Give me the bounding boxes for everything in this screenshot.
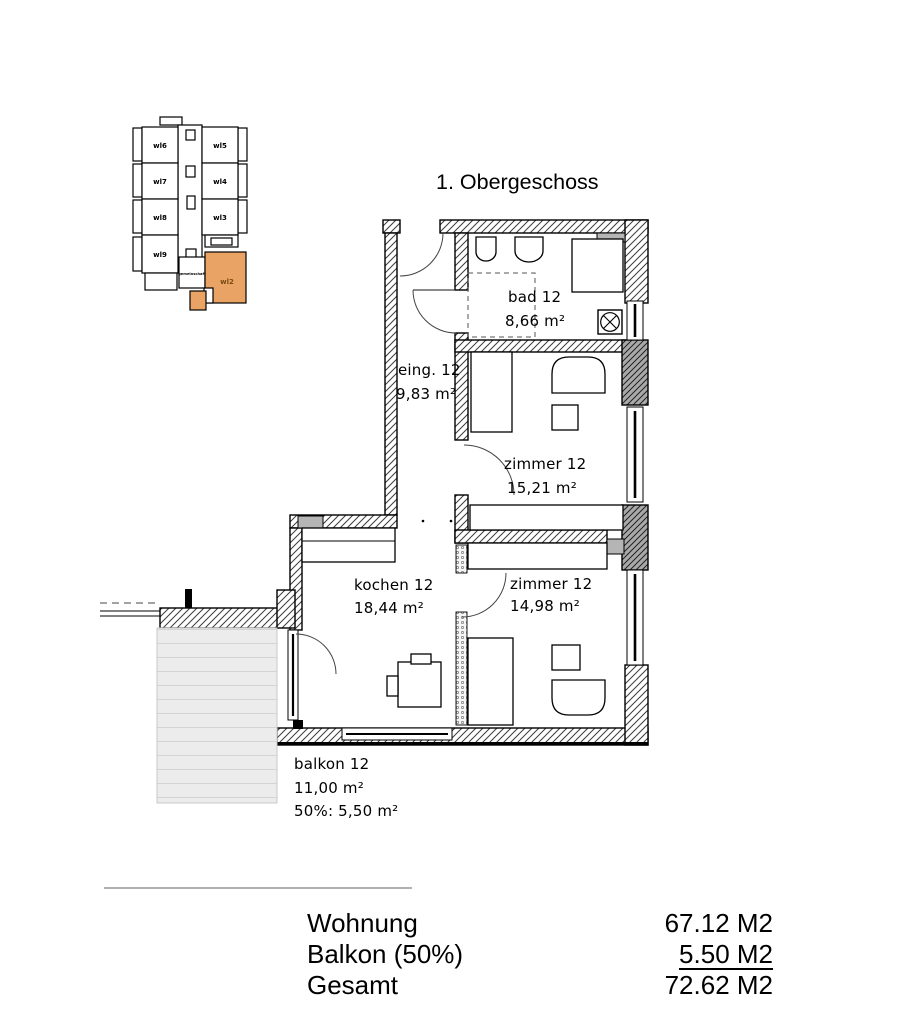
neighbor-window-line bbox=[100, 611, 160, 616]
wall-segment-dark bbox=[622, 505, 648, 570]
key-label-wl6: wl6 bbox=[153, 142, 167, 150]
wall-segment-right bbox=[625, 220, 648, 303]
wall-segment bbox=[440, 220, 648, 233]
kitchen-chair bbox=[411, 654, 431, 664]
wall-segment bbox=[455, 233, 468, 290]
key-balcony-strip bbox=[133, 237, 142, 271]
armchair-zimmer-2 bbox=[552, 680, 605, 715]
key-label-wl8: wl8 bbox=[153, 214, 167, 222]
key-label-wl2: wl2 bbox=[220, 278, 234, 286]
summary-label: Wohnung bbox=[307, 908, 418, 939]
closet-zimmer-1 bbox=[470, 505, 623, 530]
key-label-wl7: wl7 bbox=[153, 178, 167, 186]
key-balcony-strip bbox=[238, 128, 247, 161]
key-plan: wl6 wl7 wl8 wl9 wl5 wl4 wl3 gemeinschaft… bbox=[133, 117, 247, 310]
wall-segment bbox=[455, 530, 607, 543]
bathtub bbox=[572, 239, 623, 292]
marker-dot bbox=[450, 520, 453, 523]
summary-table: Wohnung 67.12 M2 Balkon (50%) 5.50 M2 Ge… bbox=[307, 908, 773, 1001]
summary-row-balkon: Balkon (50%) 5.50 M2 bbox=[307, 939, 773, 970]
room-area-balkon: 11,00 m² bbox=[294, 779, 364, 797]
room-area-zimmer-1: 15,21 m² bbox=[507, 479, 577, 497]
room-name-zimmer-1: zimmer 12 bbox=[504, 455, 586, 473]
room-name-kochen: kochen 12 bbox=[354, 576, 433, 594]
bed-zimmer-2 bbox=[468, 638, 513, 725]
summary-row-wohnung: Wohnung 67.12 M2 bbox=[307, 908, 773, 939]
kitchen-table bbox=[398, 662, 441, 707]
key-label-wl9: wl9 bbox=[153, 251, 167, 259]
balcony bbox=[100, 603, 277, 803]
armchair-zimmer-1 bbox=[552, 357, 605, 393]
door-arc-balcony bbox=[296, 634, 336, 674]
key-stair-window bbox=[187, 196, 195, 209]
summary-value: 5.50 M2 bbox=[679, 939, 773, 970]
door-arc-zimmer-2 bbox=[462, 573, 506, 617]
room-name-eing: eing. 12 bbox=[398, 361, 461, 379]
table-zimmer-2 bbox=[552, 645, 580, 670]
closet-zimmer-2 bbox=[468, 543, 607, 569]
summary-value: 72.62 M2 bbox=[665, 970, 773, 1001]
vent-symbol bbox=[598, 310, 622, 334]
toilet bbox=[476, 237, 496, 261]
key-terrace-inner bbox=[211, 238, 232, 245]
room-name-zimmer-2: zimmer 12 bbox=[510, 575, 592, 593]
key-label-wl5: wl5 bbox=[213, 142, 227, 150]
marker-dot bbox=[422, 520, 425, 523]
summary-row-gesamt: Gesamt 72.62 M2 bbox=[307, 970, 773, 1001]
key-balcony-strip bbox=[238, 200, 247, 233]
wall-stub bbox=[293, 720, 303, 729]
sink bbox=[515, 237, 543, 262]
wall-segment-balcony bbox=[160, 608, 278, 628]
room-name-balkon: balkon 12 bbox=[294, 755, 369, 773]
summary-divider bbox=[104, 887, 412, 889]
room-area-bad: 8,66 m² bbox=[505, 312, 565, 330]
bed-zimmer-1 bbox=[471, 352, 512, 432]
partition-light bbox=[456, 612, 467, 725]
door-arc-bad bbox=[413, 290, 456, 333]
wall-segment bbox=[455, 340, 625, 352]
key-stair-window bbox=[186, 166, 195, 177]
summary-label: Balkon (50%) bbox=[307, 939, 463, 970]
wall-stub bbox=[185, 589, 192, 608]
summary-value: 67.12 M2 bbox=[665, 908, 773, 939]
key-label-wl4: wl4 bbox=[213, 178, 227, 186]
key-label-wl3: wl3 bbox=[213, 214, 227, 222]
plan-title: 1. Obergeschoss bbox=[436, 170, 599, 195]
radiator bbox=[456, 545, 467, 573]
balcony-deck bbox=[157, 628, 277, 803]
key-balcony-strip bbox=[133, 200, 142, 233]
key-chimney bbox=[160, 117, 182, 125]
door-arc-entrance bbox=[400, 233, 443, 276]
summary-label: Gesamt bbox=[307, 970, 398, 1001]
key-balcony-strip bbox=[133, 128, 142, 161]
wall-segment bbox=[385, 233, 397, 515]
kitchen-counter bbox=[302, 528, 395, 562]
room-area-zimmer-2: 14,98 m² bbox=[510, 597, 580, 615]
wall-segment-right bbox=[625, 665, 648, 745]
wall-segment-dark bbox=[622, 340, 648, 405]
key-balcony-strip bbox=[238, 164, 247, 197]
wall-block-gray bbox=[607, 539, 624, 554]
wall-segment bbox=[277, 590, 295, 628]
room-area-kochen: 18,44 m² bbox=[354, 599, 424, 617]
room-name-bad: bad 12 bbox=[508, 288, 561, 306]
key-lower-room bbox=[145, 273, 177, 290]
key-balcony-strip bbox=[133, 164, 142, 197]
room-area-balkon-half: 50%: 5,50 m² bbox=[294, 802, 398, 820]
floor-plan-page: wl6 wl7 wl8 wl9 wl5 wl4 wl3 gemeinschaft… bbox=[0, 0, 910, 1034]
room-area-eing: 9,83 m² bbox=[396, 385, 456, 403]
kitchen-chair bbox=[387, 676, 398, 696]
key-unit-wl2-annex bbox=[190, 291, 206, 310]
wall-segment bbox=[383, 220, 400, 233]
floor-plan-drawing: wl6 wl7 wl8 wl9 wl5 wl4 wl3 gemeinschaft… bbox=[0, 0, 910, 1034]
key-label-gemeinschaft: gemeinschaft bbox=[178, 272, 206, 276]
key-stair-window bbox=[186, 130, 195, 140]
stove-block bbox=[298, 516, 323, 528]
table-zimmer-1 bbox=[552, 405, 578, 430]
key-stairwell bbox=[178, 125, 202, 258]
